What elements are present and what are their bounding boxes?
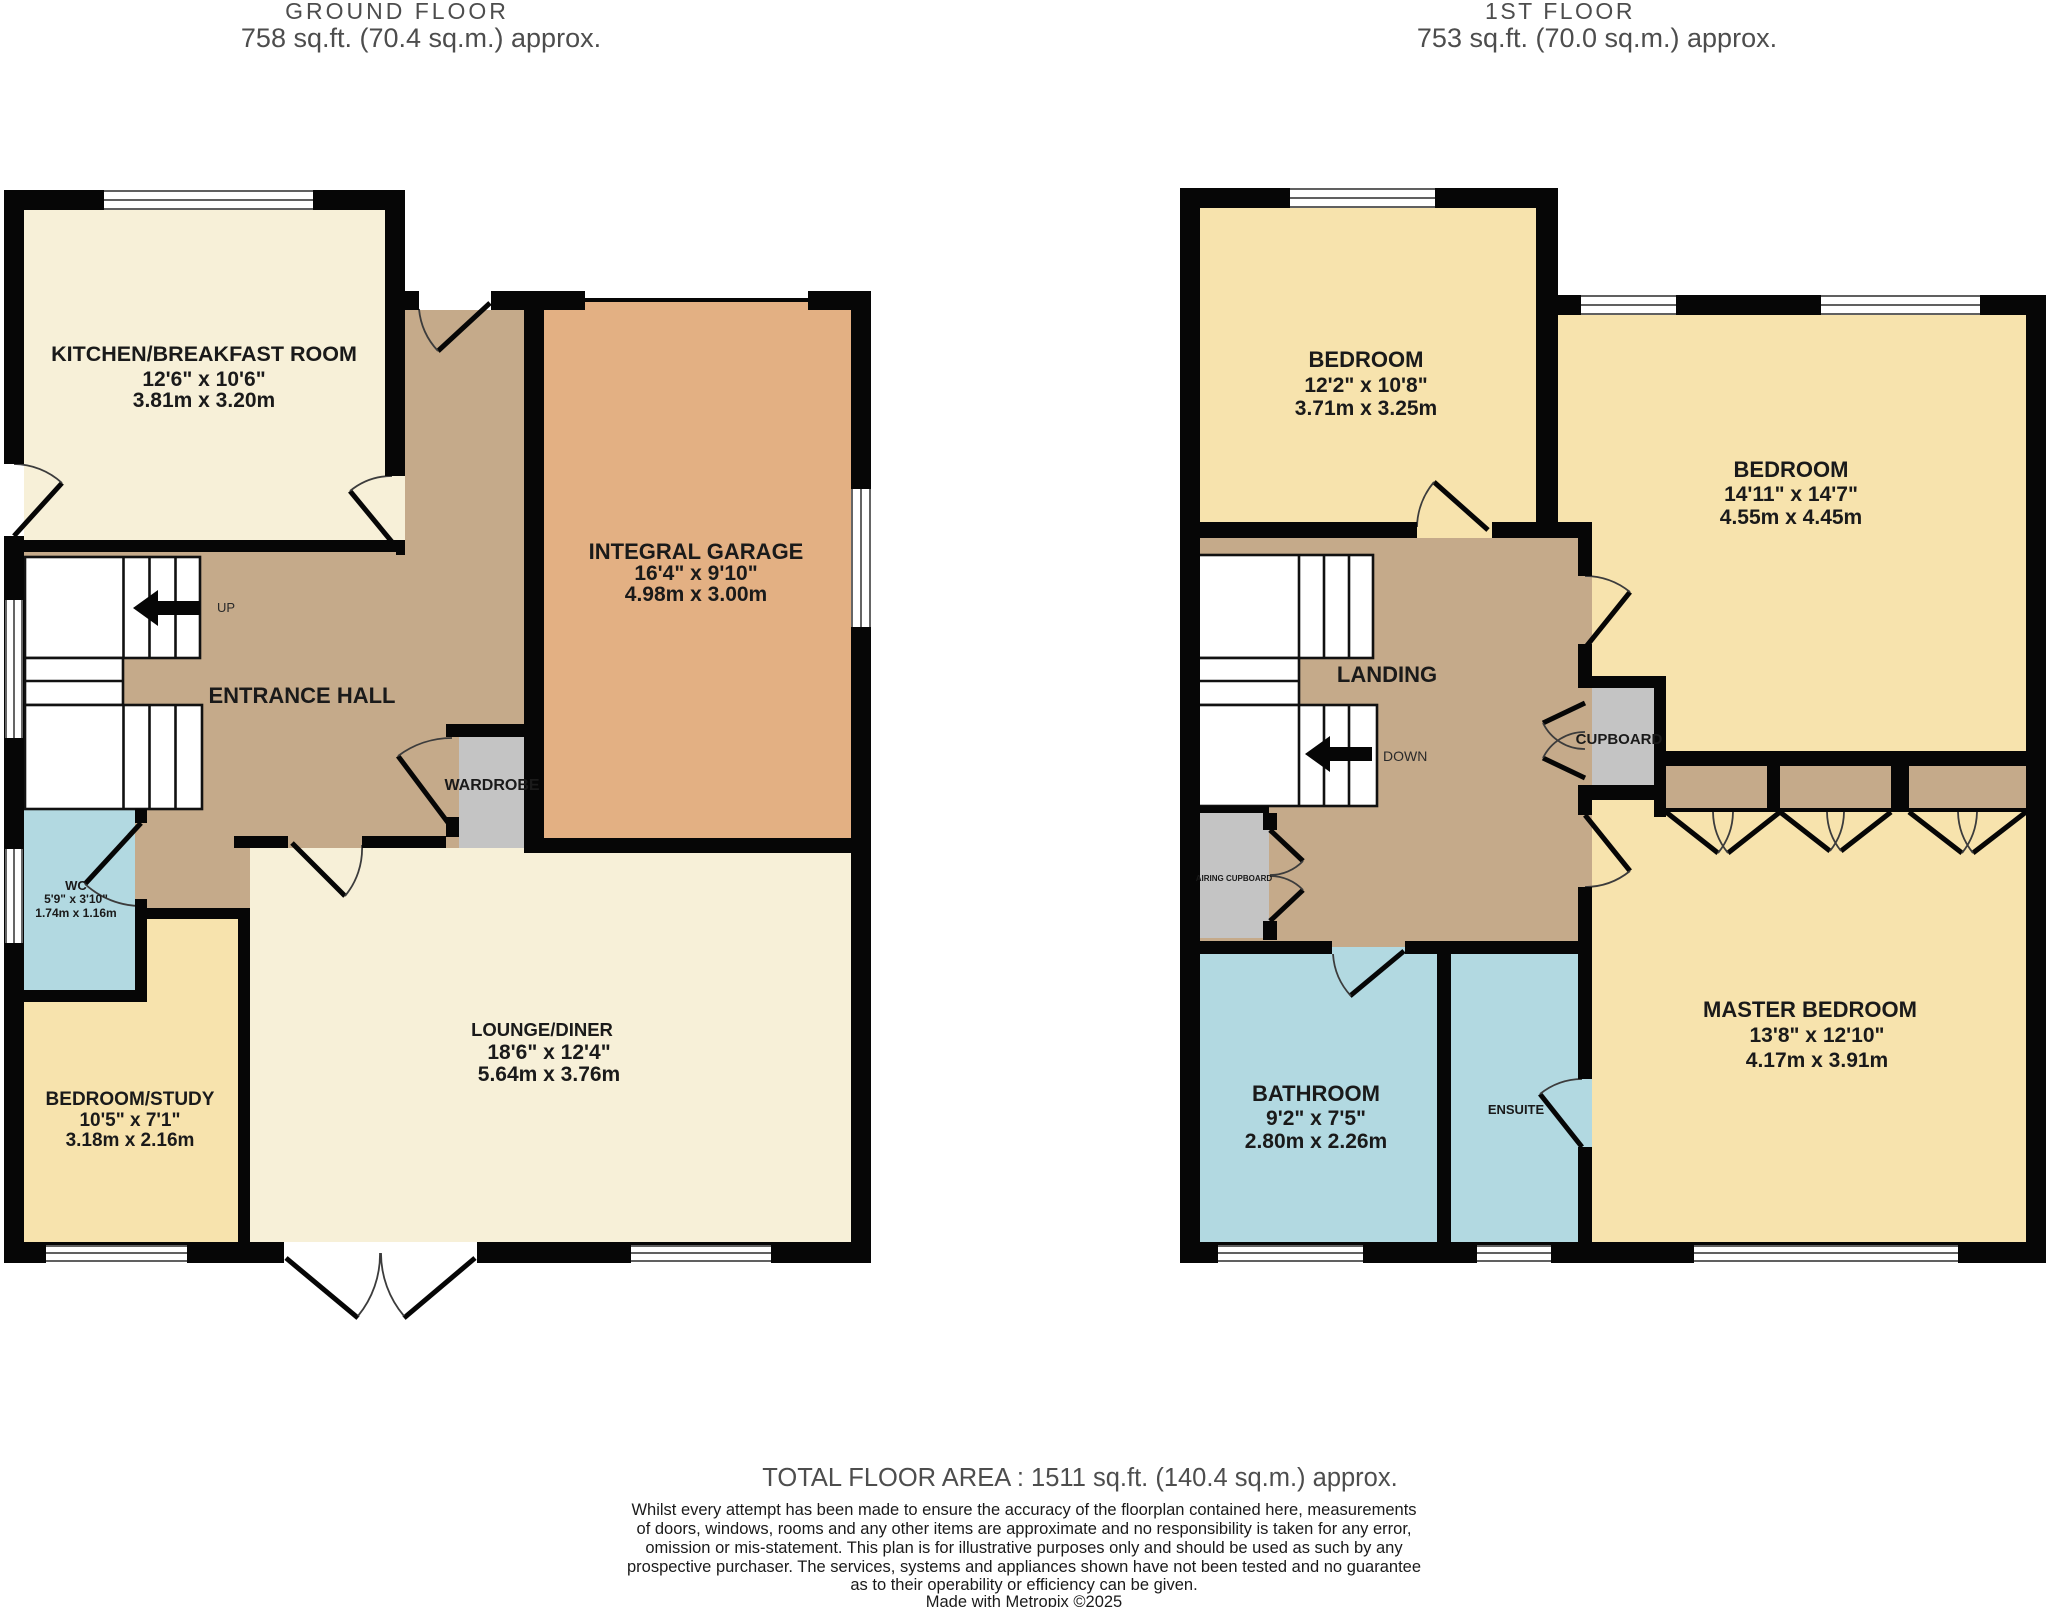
svg-text:4.98m x 3.00m: 4.98m x 3.00m	[625, 583, 767, 606]
svg-text:LANDING: LANDING	[1337, 662, 1437, 687]
svg-text:GROUND FLOOR: GROUND FLOOR	[285, 0, 509, 24]
svg-text:LOUNGE/DINER: LOUNGE/DINER	[471, 1019, 613, 1040]
svg-text:9'2" x 7'5": 9'2" x 7'5"	[1266, 1107, 1366, 1130]
svg-text:omission or mis-statement. Thi: omission or mis-statement. This plan is …	[645, 1539, 1403, 1557]
svg-text:12'6" x 10'6": 12'6" x 10'6"	[142, 368, 265, 391]
svg-text:753 sq.ft. (70.0 sq.m.) approx: 753 sq.ft. (70.0 sq.m.) approx.	[1417, 23, 1777, 53]
svg-text:BATHROOM: BATHROOM	[1252, 1081, 1380, 1106]
svg-text:ENSUITE: ENSUITE	[1488, 1102, 1545, 1117]
svg-text:3.18m x 2.16m: 3.18m x 2.16m	[66, 1130, 195, 1151]
svg-text:16'4" x 9'10": 16'4" x 9'10"	[634, 562, 757, 585]
svg-text:1ST FLOOR: 1ST FLOOR	[1485, 0, 1635, 24]
svg-text:BEDROOM: BEDROOM	[1309, 347, 1424, 372]
svg-text:3.71m x 3.25m: 3.71m x 3.25m	[1295, 397, 1437, 420]
svg-text:2.80m x 2.26m: 2.80m x 2.26m	[1245, 1130, 1387, 1153]
svg-text:of doors, windows, rooms and a: of doors, windows, rooms and any other i…	[637, 1520, 1412, 1538]
svg-text:as to their operability or eff: as to their operability or efficiency ca…	[850, 1576, 1197, 1594]
svg-text:AIRING CUPBOARD: AIRING CUPBOARD	[1196, 874, 1273, 883]
svg-text:ENTRANCE HALL: ENTRANCE HALL	[209, 683, 396, 708]
svg-text:INTEGRAL GARAGE: INTEGRAL GARAGE	[589, 539, 804, 564]
svg-text:Made with Metropix ©2025: Made with Metropix ©2025	[926, 1593, 1123, 1607]
svg-text:BEDROOM/STUDY: BEDROOM/STUDY	[46, 1089, 215, 1110]
svg-text:1.74m x 1.16m: 1.74m x 1.16m	[35, 906, 116, 920]
svg-text:WC: WC	[65, 878, 87, 893]
svg-text:5'9" x 3'10": 5'9" x 3'10"	[44, 892, 108, 906]
svg-text:14'11" x 14'7": 14'11" x 14'7"	[1724, 483, 1858, 506]
svg-text:TOTAL FLOOR AREA : 1511 sq.ft.: TOTAL FLOOR AREA : 1511 sq.ft. (140.4 sq…	[762, 1464, 1397, 1492]
svg-text:CUPBOARD: CUPBOARD	[1576, 731, 1663, 748]
svg-text:758 sq.ft. (70.4 sq.m.) approx: 758 sq.ft. (70.4 sq.m.) approx.	[241, 23, 601, 53]
svg-text:12'2" x 10'8": 12'2" x 10'8"	[1304, 374, 1427, 397]
svg-text:Whilst every attempt has been: Whilst every attempt has been made to en…	[631, 1501, 1416, 1519]
svg-text:4.55m x 4.45m: 4.55m x 4.45m	[1720, 506, 1862, 529]
svg-text:WARDROBE: WARDROBE	[444, 777, 539, 794]
svg-text:18'6" x 12'4": 18'6" x 12'4"	[487, 1041, 610, 1064]
svg-text:DOWN: DOWN	[1383, 748, 1427, 764]
svg-text:3.81m x 3.20m: 3.81m x 3.20m	[133, 389, 275, 412]
svg-text:10'5" x 7'1": 10'5" x 7'1"	[79, 1110, 180, 1131]
svg-text:4.17m x 3.91m: 4.17m x 3.91m	[1746, 1049, 1888, 1072]
svg-text:prospective purchaser. The ser: prospective purchaser. The services, sys…	[627, 1558, 1421, 1576]
svg-text:BEDROOM: BEDROOM	[1734, 457, 1849, 482]
svg-text:5.64m x 3.76m: 5.64m x 3.76m	[478, 1063, 620, 1086]
svg-text:13'8" x 12'10": 13'8" x 12'10"	[1749, 1024, 1884, 1047]
svg-text:KITCHEN/BREAKFAST ROOM: KITCHEN/BREAKFAST ROOM	[51, 342, 357, 366]
svg-text:UP: UP	[217, 600, 235, 615]
svg-text:MASTER BEDROOM: MASTER BEDROOM	[1703, 997, 1917, 1022]
